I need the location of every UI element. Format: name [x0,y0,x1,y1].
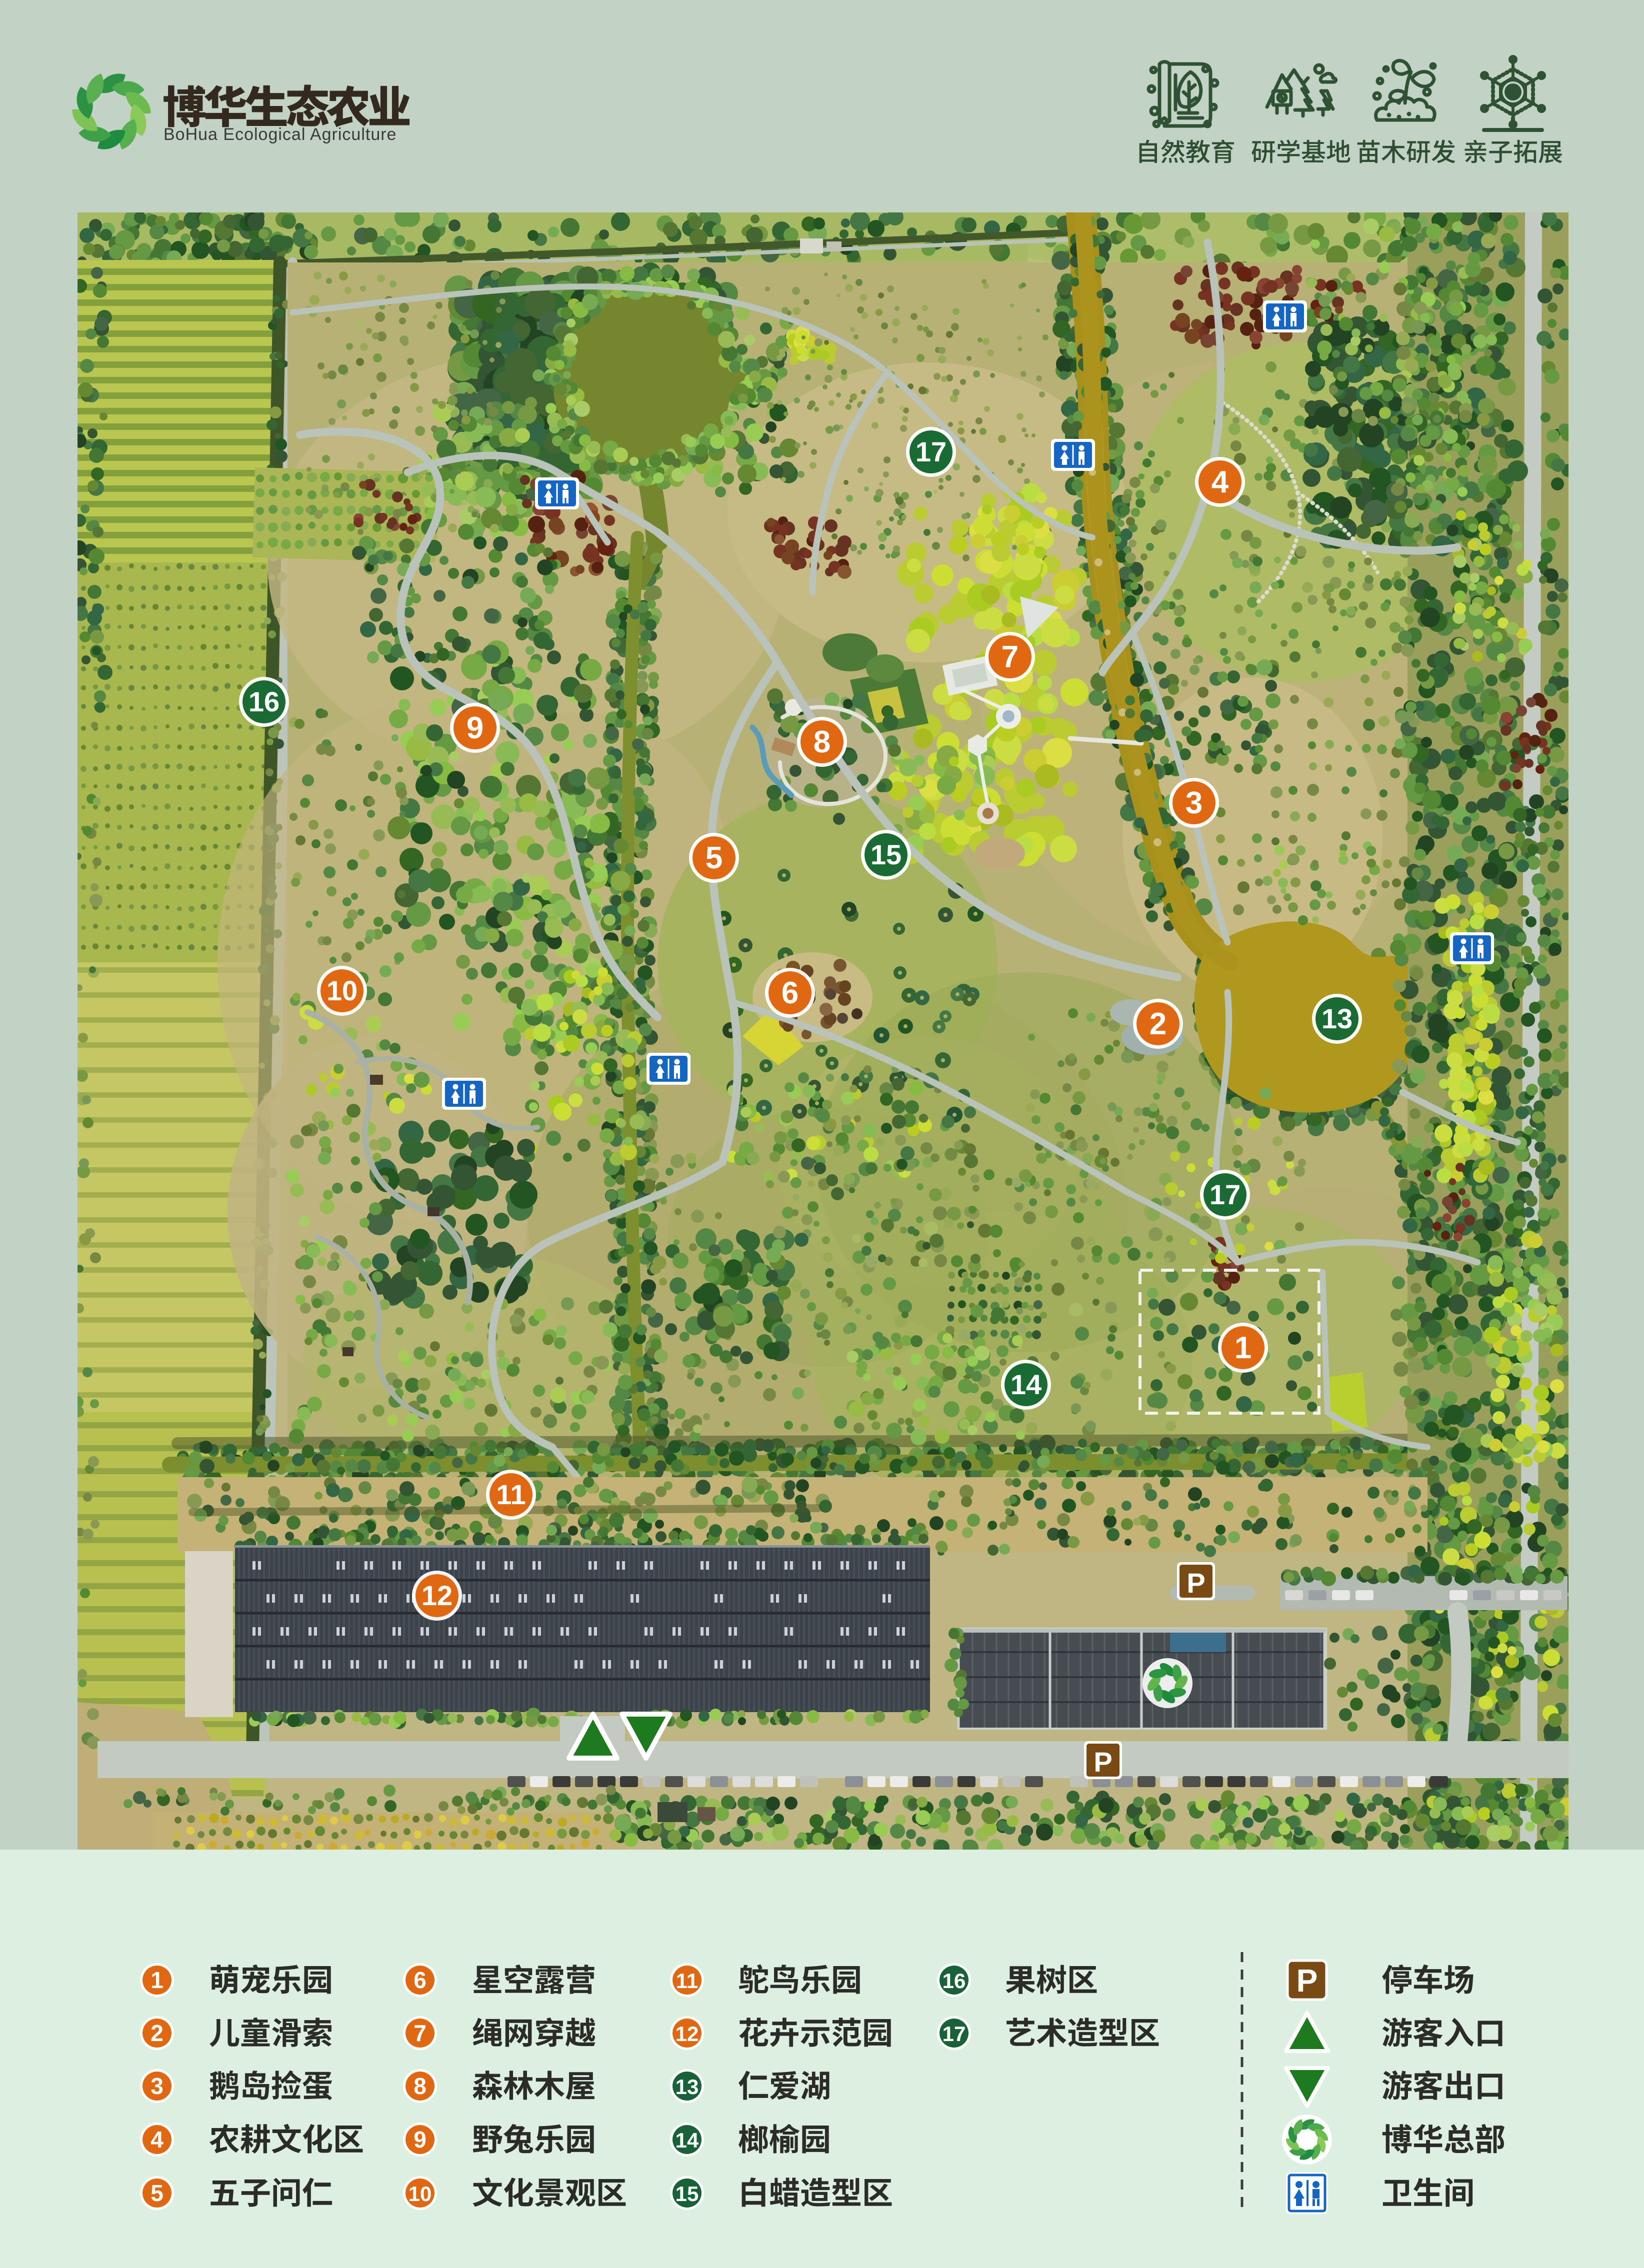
svg-text:BoHua Ecological Agriculture: BoHua Ecological Agriculture [163,125,396,144]
